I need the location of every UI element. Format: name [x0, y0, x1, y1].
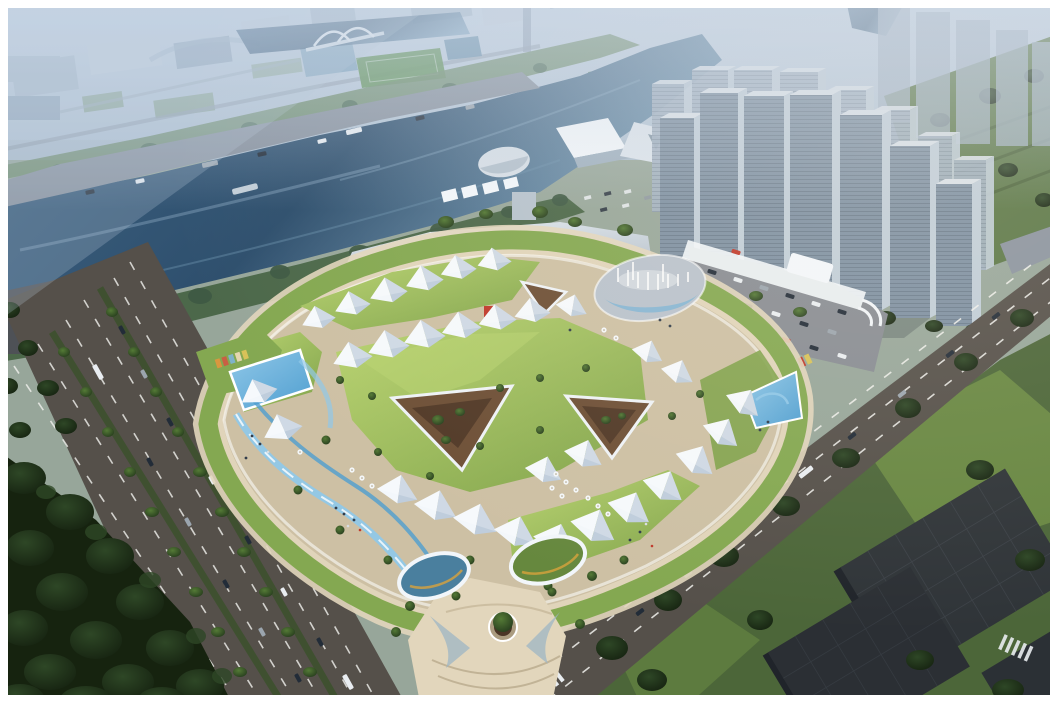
- sunlight-glow: [0, 0, 1058, 703]
- rendering-canvas: [0, 0, 1058, 703]
- architectural-rendering: [0, 0, 1058, 703]
